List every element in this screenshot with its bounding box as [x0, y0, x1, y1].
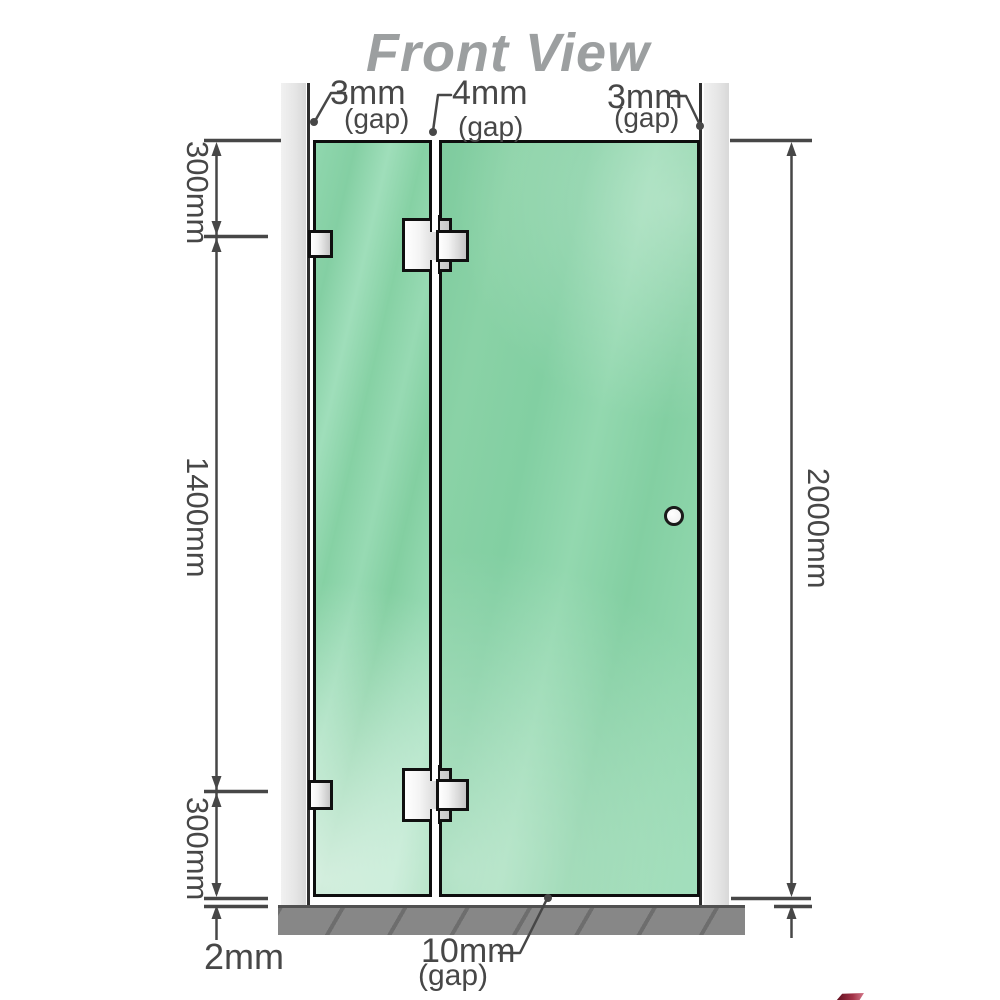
leader-lines: [315, 93, 700, 953]
dim-label-left-bottom: 300mm: [182, 797, 213, 900]
gap-label-top-left-note: (gap): [344, 104, 409, 133]
gap-label-bottom-note: (gap): [418, 960, 488, 992]
gap-label-top-right-note: (gap): [614, 103, 679, 132]
left-dimension-lines: [204, 141, 281, 941]
dim-label-left-middle: 1400mm: [182, 457, 213, 578]
shower-screen-front-view-diagram: Front View: [0, 0, 1000, 1000]
gap-label-top-middle-value: 4mm: [452, 76, 528, 112]
dim-label-right-height: 2000mm: [803, 468, 834, 589]
right-dimension-lines: [730, 141, 812, 939]
dimension-graphics: [0, 0, 1000, 1000]
leader-dots: [310, 118, 704, 902]
gap-label-top-middle-note: (gap): [458, 112, 523, 141]
dim-label-floor-clearance: 2mm: [204, 938, 284, 976]
dim-label-left-top: 300mm: [182, 141, 213, 244]
